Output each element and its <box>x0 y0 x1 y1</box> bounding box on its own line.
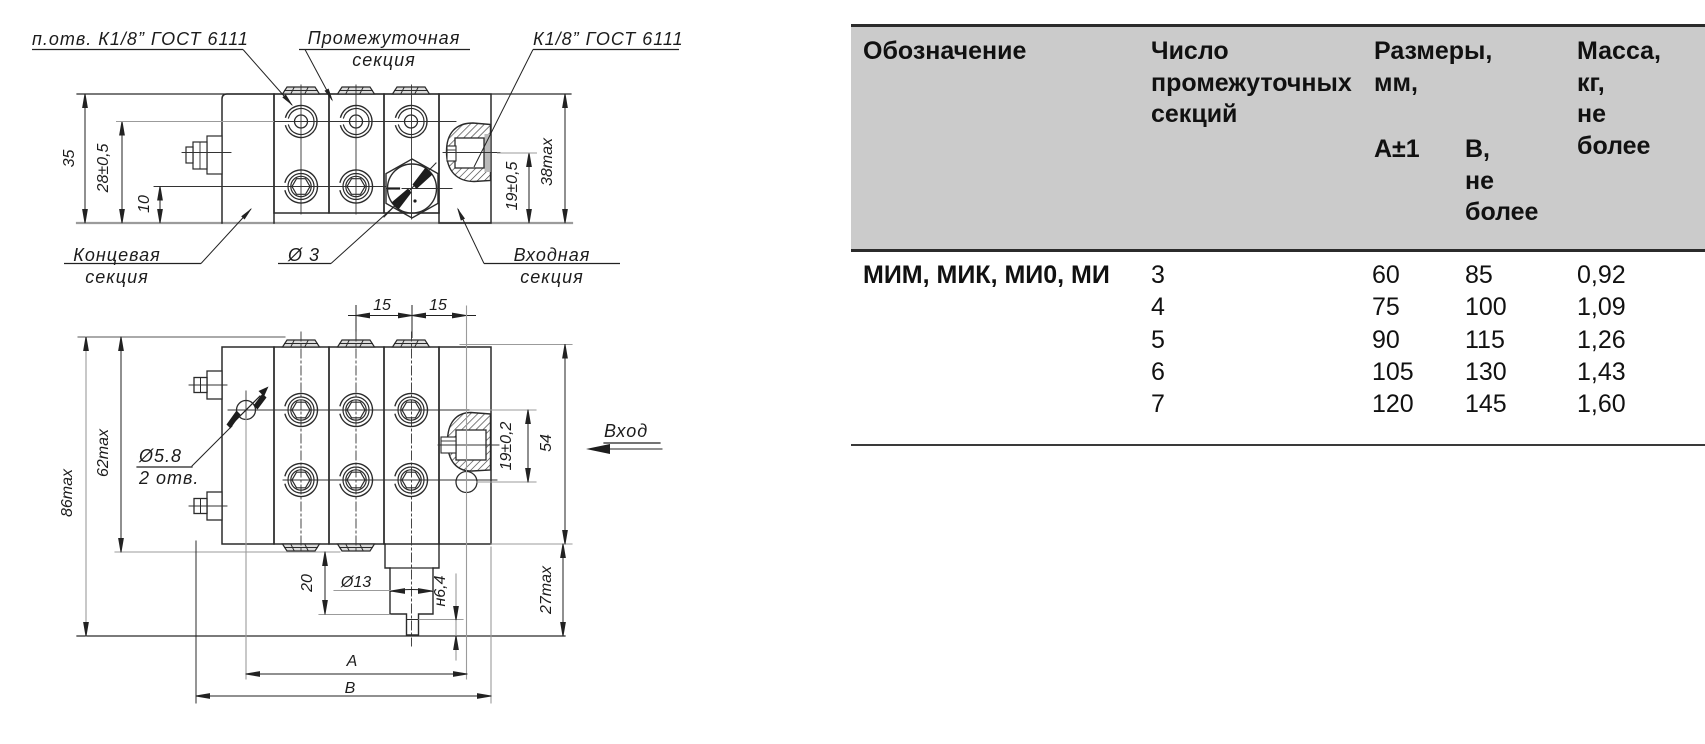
svg-text:Ø 3: Ø 3 <box>287 245 320 265</box>
svg-text:К1/8” ГОСТ 6111: К1/8” ГОСТ 6111 <box>533 29 684 49</box>
svg-text:19±0,2: 19±0,2 <box>498 421 515 470</box>
svg-text:A: A <box>346 653 358 670</box>
svg-text:62max: 62max <box>95 428 112 477</box>
svg-text:2 отв.: 2 отв. <box>138 468 199 488</box>
svg-text:секция: секция <box>85 267 148 287</box>
svg-text:54: 54 <box>538 434 555 452</box>
svg-text:86max: 86max <box>59 468 76 517</box>
svg-text:Вход: Вход <box>604 421 648 441</box>
svg-text:н6,4: н6,4 <box>432 575 449 606</box>
svg-text:Ø13: Ø13 <box>340 574 371 591</box>
svg-text:28±0,5: 28±0,5 <box>95 143 112 193</box>
svg-text:Промежуточная: Промежуточная <box>308 28 461 48</box>
svg-text:секция: секция <box>352 50 415 70</box>
svg-text:19±0,5: 19±0,5 <box>504 161 521 210</box>
svg-text:секция: секция <box>520 267 583 287</box>
svg-text:27max: 27max <box>538 565 555 615</box>
svg-text:15: 15 <box>373 297 391 314</box>
svg-text:B: B <box>345 680 356 697</box>
svg-text:35: 35 <box>61 150 78 168</box>
svg-text:п.отв. К1/8” ГОСТ 6111: п.отв. К1/8” ГОСТ 6111 <box>32 29 249 49</box>
svg-text:Ø5.8: Ø5.8 <box>138 446 182 466</box>
svg-text:10: 10 <box>136 195 153 213</box>
svg-text:15: 15 <box>429 297 447 314</box>
svg-text:Входная: Входная <box>514 245 591 265</box>
svg-text:Концевая: Концевая <box>73 245 160 265</box>
svg-text:38max: 38max <box>539 137 556 186</box>
svg-text:20: 20 <box>299 574 316 593</box>
